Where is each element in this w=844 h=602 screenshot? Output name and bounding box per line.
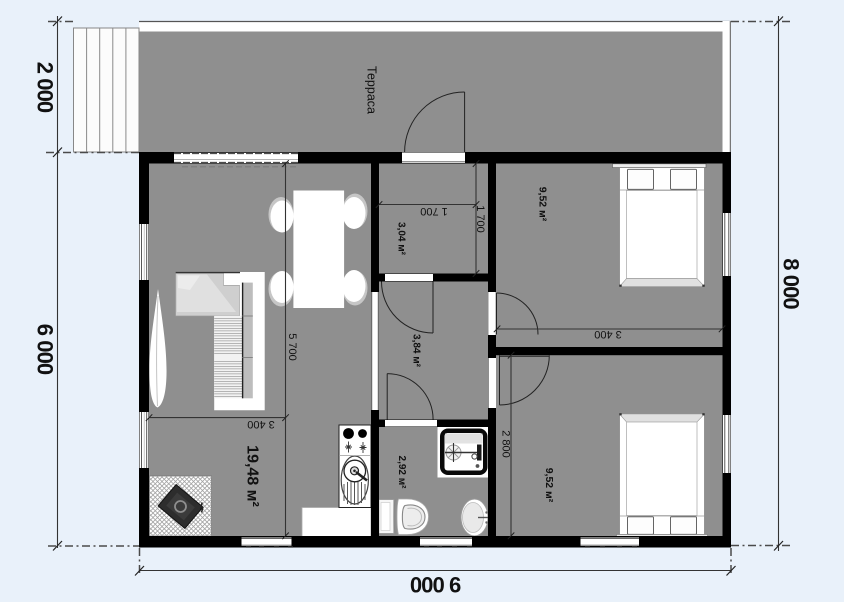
svg-text:3 400: 3 400 [247, 418, 275, 430]
svg-text:Терраса: Терраса [365, 66, 379, 114]
svg-text:9,52 м²: 9,52 м² [543, 468, 555, 503]
svg-text:1 700: 1 700 [420, 205, 448, 217]
svg-text:2,92 м²: 2,92 м² [396, 456, 407, 490]
svg-text:3,84 м²: 3,84 м² [411, 334, 422, 368]
svg-text:9 000: 9 000 [410, 572, 461, 597]
svg-text:2 800: 2 800 [499, 430, 511, 458]
svg-text:3 400: 3 400 [594, 328, 622, 340]
svg-text:3,04 м²: 3,04 м² [396, 222, 407, 256]
svg-text:19,48 м²: 19,48 м² [244, 445, 261, 507]
svg-text:8 000: 8 000 [779, 258, 804, 309]
svg-text:5 700: 5 700 [286, 333, 298, 361]
svg-text:2 000: 2 000 [33, 62, 58, 113]
svg-text:6 000: 6 000 [33, 324, 58, 375]
svg-text:1 700: 1 700 [474, 205, 486, 233]
svg-text:9,52 м²: 9,52 м² [537, 187, 549, 222]
